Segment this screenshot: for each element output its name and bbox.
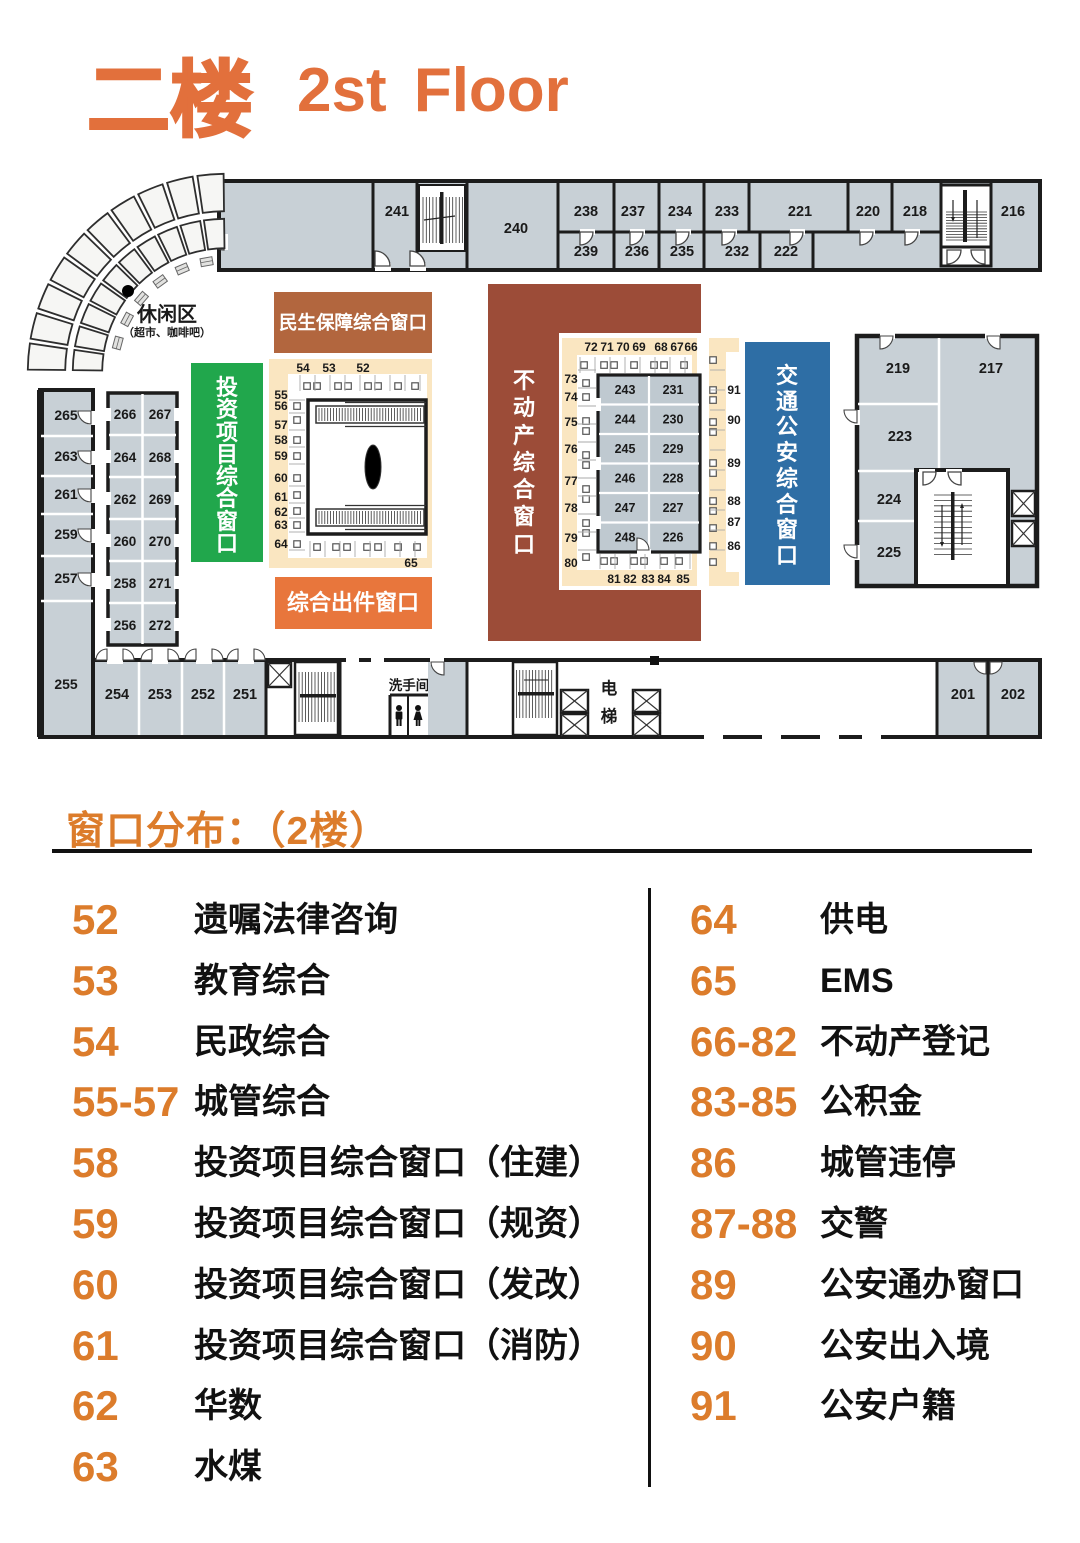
svg-text:228: 228 xyxy=(663,472,684,486)
svg-text:68: 68 xyxy=(654,340,668,354)
svg-text:226: 226 xyxy=(663,531,684,545)
svg-text:229: 229 xyxy=(663,442,684,456)
svg-text:216: 216 xyxy=(1001,204,1025,220)
svg-text:57: 57 xyxy=(274,418,288,432)
svg-text:259: 259 xyxy=(54,526,78,542)
svg-text:73: 73 xyxy=(564,372,578,386)
svg-text:260: 260 xyxy=(114,534,137,549)
svg-text:交通公安综合窗口: 交通公安综合窗口 xyxy=(776,363,799,568)
svg-text:238: 238 xyxy=(574,204,598,220)
svg-text:投资项目综合窗口: 投资项目综合窗口 xyxy=(216,375,239,556)
svg-text:88: 88 xyxy=(727,494,741,508)
svg-text:225: 225 xyxy=(877,545,901,561)
svg-text:56: 56 xyxy=(274,399,288,413)
svg-text:261: 261 xyxy=(54,486,78,502)
svg-text:65: 65 xyxy=(404,556,418,570)
svg-text:248: 248 xyxy=(615,531,636,545)
svg-text:234: 234 xyxy=(668,204,692,220)
svg-text:休闲区: 休闲区 xyxy=(136,302,197,326)
svg-text:洗手间: 洗手间 xyxy=(389,677,430,693)
svg-text:243: 243 xyxy=(615,383,636,397)
svg-text:54: 54 xyxy=(296,361,310,375)
svg-text:84: 84 xyxy=(657,572,671,586)
svg-text:52: 52 xyxy=(356,361,370,375)
svg-text:245: 245 xyxy=(615,442,636,456)
svg-text:241: 241 xyxy=(385,204,409,220)
svg-text:不动产综合窗口: 不动产综合窗口 xyxy=(513,368,536,557)
svg-text:240: 240 xyxy=(504,221,528,237)
svg-text:梯: 梯 xyxy=(601,706,618,726)
svg-text:70: 70 xyxy=(616,340,630,354)
svg-text:264: 264 xyxy=(114,450,137,465)
svg-text:85: 85 xyxy=(676,572,690,586)
svg-text:82: 82 xyxy=(623,572,637,586)
svg-text:253: 253 xyxy=(148,687,172,703)
svg-text:69: 69 xyxy=(632,340,646,354)
svg-text:269: 269 xyxy=(149,492,172,507)
svg-text:220: 220 xyxy=(856,204,880,220)
svg-text:247: 247 xyxy=(615,501,636,515)
svg-text:79: 79 xyxy=(564,531,578,545)
svg-text:71: 71 xyxy=(600,340,614,354)
svg-text:266: 266 xyxy=(114,407,137,422)
svg-text:81: 81 xyxy=(607,572,621,586)
svg-text:267: 267 xyxy=(149,407,172,422)
svg-text:239: 239 xyxy=(574,244,598,260)
svg-text:80: 80 xyxy=(564,556,578,570)
svg-text:76: 76 xyxy=(564,442,578,456)
svg-text:246: 246 xyxy=(615,472,636,486)
svg-text:236: 236 xyxy=(625,244,649,260)
svg-text:218: 218 xyxy=(903,204,927,220)
svg-text:268: 268 xyxy=(149,450,172,465)
svg-text:232: 232 xyxy=(725,244,749,260)
svg-text:61: 61 xyxy=(274,490,288,504)
svg-text:251: 251 xyxy=(233,687,257,703)
svg-text:59: 59 xyxy=(274,449,288,463)
svg-text:252: 252 xyxy=(191,687,215,703)
svg-text:217: 217 xyxy=(979,361,1003,377)
svg-text:270: 270 xyxy=(149,534,172,549)
svg-text:66: 66 xyxy=(684,340,698,354)
svg-text:72: 72 xyxy=(584,340,598,354)
svg-text:89: 89 xyxy=(727,456,741,470)
svg-text:83: 83 xyxy=(641,572,655,586)
svg-text:256: 256 xyxy=(114,618,137,633)
svg-text:263: 263 xyxy=(54,448,78,464)
svg-text:75: 75 xyxy=(564,415,578,429)
svg-text:87: 87 xyxy=(727,515,741,529)
svg-text:257: 257 xyxy=(54,570,78,586)
svg-text:91: 91 xyxy=(727,383,741,397)
svg-text:201: 201 xyxy=(951,687,975,703)
svg-text:227: 227 xyxy=(663,501,684,515)
svg-text:233: 233 xyxy=(715,204,739,220)
svg-text:53: 53 xyxy=(322,361,336,375)
svg-text:255: 255 xyxy=(54,676,78,692)
svg-text:电: 电 xyxy=(601,678,618,698)
svg-text:224: 224 xyxy=(877,492,901,508)
svg-text:78: 78 xyxy=(564,501,578,515)
svg-text:民生保障综合窗口: 民生保障综合窗口 xyxy=(279,312,427,333)
svg-text:64: 64 xyxy=(274,537,288,551)
svg-text:231: 231 xyxy=(663,383,684,397)
svg-text:60: 60 xyxy=(274,471,288,485)
svg-text:230: 230 xyxy=(663,413,684,427)
svg-text:62: 62 xyxy=(274,505,288,519)
svg-text:67: 67 xyxy=(670,340,684,354)
svg-text:77: 77 xyxy=(564,474,578,488)
svg-text:86: 86 xyxy=(727,539,741,553)
svg-text:235: 235 xyxy=(670,244,694,260)
svg-text:63: 63 xyxy=(274,518,288,532)
svg-text:222: 222 xyxy=(774,244,798,260)
svg-text:74: 74 xyxy=(564,390,578,404)
svg-text:258: 258 xyxy=(114,576,137,591)
svg-text:219: 219 xyxy=(886,361,910,377)
svg-text:254: 254 xyxy=(105,687,129,703)
svg-text:（超市、咖啡吧）: （超市、咖啡吧） xyxy=(123,325,211,339)
svg-text:223: 223 xyxy=(888,429,912,445)
svg-text:221: 221 xyxy=(788,204,812,220)
svg-text:202: 202 xyxy=(1001,687,1025,703)
svg-text:262: 262 xyxy=(114,492,137,507)
svg-text:综合出件窗口: 综合出件窗口 xyxy=(287,590,419,615)
svg-text:237: 237 xyxy=(621,204,645,220)
svg-text:90: 90 xyxy=(727,413,741,427)
svg-text:272: 272 xyxy=(149,618,172,633)
svg-text:271: 271 xyxy=(149,576,172,591)
svg-text:58: 58 xyxy=(274,433,288,447)
svg-text:265: 265 xyxy=(54,407,78,423)
svg-text:244: 244 xyxy=(615,413,636,427)
